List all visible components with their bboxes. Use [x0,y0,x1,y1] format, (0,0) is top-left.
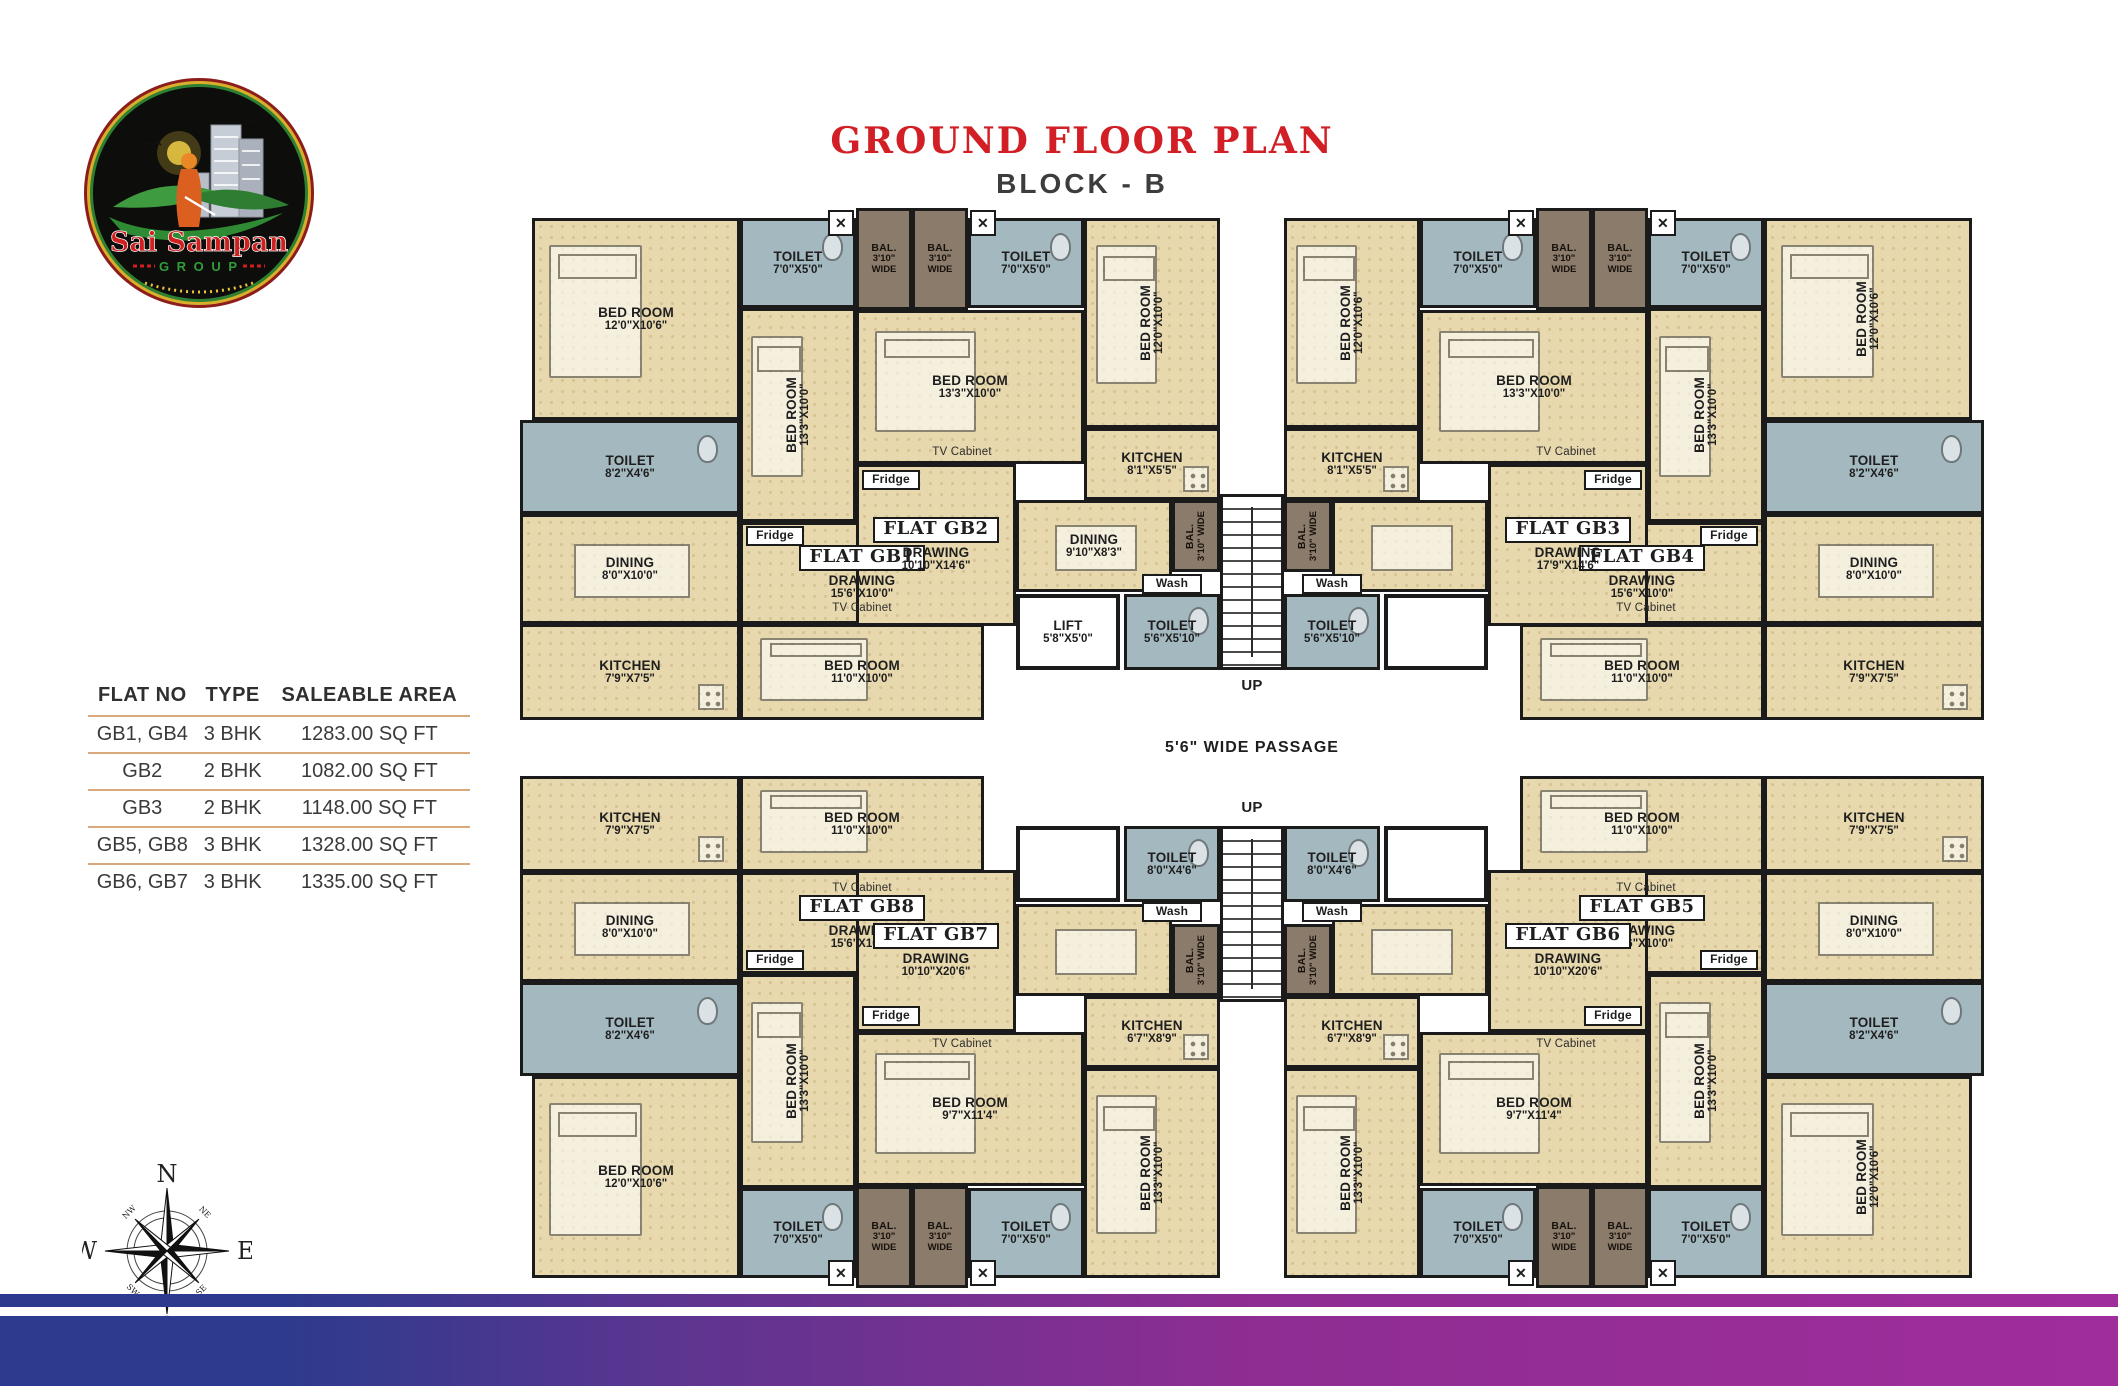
table-cell: GB5, GB8 [88,827,197,864]
room-gb3-bed1: BED ROOM13'3"X10'0" [1420,310,1648,464]
room-passage: 5'6" WIDE PASSAGE [826,720,1678,776]
room-gb2-kitchen: KITCHEN8'1"X5'5" [1084,428,1220,500]
room-label: KITCHEN7'9"X7'5" [599,658,660,686]
room-label: BAL.3'10" WIDE [1185,935,1207,985]
room-label: TOILET7'0"X5'0" [773,249,823,277]
room-gb5-bed1: BED ROOM12'0"X10'6" [1764,1076,1972,1278]
room-label: DINING8'0"X10'0" [602,555,658,583]
room-label: Fridge [872,1009,910,1022]
table-cell: 3 BHK [197,827,269,864]
room-label: Fridge [1710,529,1748,542]
room-label: FLAT GB2DRAWING10'10"X14'6" [873,517,998,572]
corner-cross-icon: ✕ [1508,210,1534,236]
table-cell: 3 BHK [197,716,269,753]
room-label: UP [1241,678,1262,695]
room-fridge-gb4: Fridge [1700,526,1758,546]
sai-sampan-logo: Sai Sampan G R O U P [90,84,308,302]
room-gb1-toilet-2: TOILET8'2"X4'6" [520,420,740,514]
room-label: TOILET7'0"X5'0" [1681,1219,1731,1247]
room-label: KITCHEN7'9"X7'5" [1843,658,1904,686]
wc-icon [1502,1203,1523,1231]
room-gb5-dining: DINING8'0"X10'0" [1764,872,1984,982]
room-bal-bot-right-2: BAL.3'10" WIDE [1536,1186,1592,1288]
table-icon [1371,525,1453,570]
flat-area-table: FLAT NOTYPESALEABLE AREA GB1, GB43 BHK12… [88,678,470,900]
room-bal-bot-left-2: BAL.3'10" WIDE [912,1186,968,1288]
stove-icon [1383,466,1409,492]
room-gb3-wash: Wash [1302,574,1362,594]
table-header: TYPE [197,678,269,716]
room-gb4-kitchen: KITCHEN7'9"X7'5" [1764,624,1984,720]
corner-cross-icon: ✕ [970,1260,996,1286]
logo-art-icon: Sai Sampan G R O U P [93,87,305,299]
room-gb3-bal: BAL.3'10" WIDE [1284,500,1332,572]
room-gb7-bed1: BED ROOM9'7"X11'4" [856,1032,1084,1186]
room-label: ✕ [835,1266,847,1280]
room-label: BED ROOM13'3"X10'0" [784,377,812,453]
room-label: Fridge [756,953,794,966]
room-gb6-wash: Wash [1302,902,1362,922]
room-gb4-dining: DINING8'0"X10'0" [1764,514,1984,624]
room-landing-bot-left [1016,826,1120,902]
table-cell: 3 BHK [197,864,269,900]
room-label: BAL.3'10" WIDE [1185,511,1207,561]
room-label: FLAT GB6DRAWING10'10"X20'6" [1505,923,1630,978]
table-cell: GB1, GB4 [88,716,197,753]
room-label: Fridge [1594,473,1632,486]
room-label: DINING9'10"X8'3" [1066,532,1122,560]
room-gb2-toilet-lobby: TOILET5'6"X5'10" [1124,594,1220,670]
table-cell: 1082.00 SQ FT [269,753,470,790]
wc-icon [1730,1203,1751,1231]
room-label: ✕ [977,216,989,230]
stairs-stairs-bottom [1220,826,1284,1002]
wc-icon [822,233,843,261]
room-label: BED ROOM12'0"X10'0" [1138,285,1166,361]
stove-icon [1942,684,1968,710]
logo-name-text: Sai Sampan [110,227,289,258]
room-label: ✕ [835,216,847,230]
room-gb5-kitchen: KITCHEN7'9"X7'5" [1764,776,1984,872]
flat-name-label: FLAT GB7 [873,923,998,948]
stove-icon [1383,1034,1409,1060]
table-header: SALEABLE AREA [269,678,470,716]
room-gb5-bed2: BED ROOM13'3"X10'0" [1648,974,1764,1188]
table-cell: 1328.00 SQ FT [269,827,470,864]
room-gb8-kitchen: KITCHEN7'9"X7'5" [520,776,740,872]
room-gb2-wash: Wash [1142,574,1202,594]
room-label: TV Cabinet [1616,602,1676,615]
room-bal-bot-left-1: BAL.3'10" WIDE [856,1186,912,1288]
room-label: BED ROOM12'0"X10'6" [1338,285,1366,361]
room-gb1-bed3: BED ROOM11'0"X10'0" [740,624,984,720]
footer-accent-stripe [0,1294,2118,1307]
room-label: TOILET8'2"X4'6" [1849,1015,1899,1043]
room-label: ✕ [1657,216,1669,230]
room-label: DINING8'0"X10'0" [1846,913,1902,941]
room-label: BAL.3'10" WIDE [1539,1221,1589,1254]
room-up-top: UP [1220,676,1284,696]
stove-icon [698,836,724,862]
room-gb8-dining: DINING8'0"X10'0" [520,872,740,982]
room-label: BED ROOM12'0"X10'6" [598,1163,674,1191]
room-gb4-bed2: BED ROOM13'3"X10'0" [1648,308,1764,522]
room-gb3-bed2: BED ROOM12'0"X10'6" [1284,218,1420,428]
room-tv-gb6: TV Cabinet [1524,1036,1608,1052]
room-label: TOILET8'2"X4'6" [605,1015,655,1043]
room-label: BED ROOM13'3"X10'0" [784,1043,812,1119]
wc-icon [822,1203,843,1231]
wc-icon [697,435,718,463]
wc-icon [1941,997,1962,1025]
room-label: TV Cabinet [932,1038,992,1051]
room-gb6-bed2: BED ROOM13'3"X10'0" [1284,1068,1420,1278]
flat-name-label: FLAT GB5 [1579,895,1704,920]
room-label: Wash [1156,577,1188,590]
room-tv-gb5: TV Cabinet [1604,880,1688,896]
table-cell: 1148.00 SQ FT [269,790,470,827]
room-label: Fridge [1710,953,1748,966]
room-gb8-bed1: BED ROOM12'0"X10'6" [532,1076,740,1278]
room-bal-bot-right-1: BAL.3'10" WIDE [1592,1186,1648,1288]
room-gb2-bed1: BED ROOM13'3"X10'0" [856,310,1084,464]
room-bal-top-right-2: BAL.3'10" WIDE [1536,208,1592,310]
room-label: TOILET5'6"X5'10" [1304,618,1360,646]
room-gb7-bed2: BED ROOM13'3"X10'0" [1084,1068,1220,1278]
room-label: TOILET7'0"X5'0" [1681,249,1731,277]
stove-icon [1942,836,1968,862]
room-gb7-wash: Wash [1142,902,1202,922]
compass-west-label: W [82,1237,97,1265]
room-label: BED ROOM12'0"X10'6" [1854,1139,1882,1215]
block-subtitle: BLOCK - B [742,168,1422,200]
room-gb4-bed3: BED ROOM11'0"X10'0" [1520,624,1764,720]
room-label: KITCHEN8'1"X5'5" [1321,450,1382,478]
room-label: ✕ [1657,1266,1669,1280]
room-label: ✕ [977,1266,989,1280]
table-row: GB6, GB73 BHK1335.00 SQ FT [88,864,470,900]
room-label: TV Cabinet [1536,1038,1596,1051]
room-label: BAL.3'10" WIDE [1595,1221,1645,1254]
wc-icon [697,997,718,1025]
table-cell: GB2 [88,753,197,790]
compass-north-label: N [157,1160,178,1188]
room-tv-gb3: TV Cabinet [1524,444,1608,460]
flat-area-table-head: FLAT NOTYPESALEABLE AREA [88,678,470,716]
room-gb5-toilet-2: TOILET8'2"X4'6" [1764,982,1984,1076]
room-label: Fridge [872,473,910,486]
room-label: FLAT GB3DRAWING17'9"X14'6" [1505,517,1630,572]
table-cell: 2 BHK [197,753,269,790]
room-gb1-kitchen: KITCHEN7'9"X7'5" [520,624,740,720]
table-row: GB22 BHK1082.00 SQ FT [88,753,470,790]
table-row: GB32 BHK1148.00 SQ FT [88,790,470,827]
room-label: BED ROOM11'0"X10'0" [824,810,900,838]
room-label: TOILET7'0"X5'0" [1001,249,1051,277]
room-gb3-toilet-lobby: TOILET5'6"X5'10" [1284,594,1380,670]
room-label: Wash [1316,577,1348,590]
compass-ne-label: NE [197,1205,213,1221]
room-label: 5'6" WIDE PASSAGE [1165,739,1339,757]
corner-cross-icon: ✕ [828,210,854,236]
room-gb8-toilet-2: TOILET8'2"X4'6" [520,982,740,1076]
room-label: BED ROOM13'3"X10'0" [1338,1135,1366,1211]
room-gb1-dining: DINING8'0"X10'0" [520,514,740,624]
room-fridge-gb3: Fridge [1584,470,1642,490]
room-fridge-gb8: Fridge [746,950,804,970]
room-label: BED ROOM13'3"X10'0" [1138,1135,1166,1211]
table-cell: 2 BHK [197,790,269,827]
room-fridge-gb2: Fridge [862,470,920,490]
logo-group-text: G R O U P [159,259,239,274]
room-label: TOILET8'2"X4'6" [605,453,655,481]
room-label: BAL.3'10" WIDE [859,243,909,276]
table-row: GB1, GB43 BHK1283.00 SQ FT [88,716,470,753]
wc-icon [1050,1203,1071,1231]
room-label: BED ROOM11'0"X10'0" [1604,810,1680,838]
room-label: BAL.3'10" WIDE [1297,511,1319,561]
room-label: BAL.3'10" WIDE [915,243,965,276]
room-tv-gb8: TV Cabinet [820,880,904,896]
room-label: KITCHEN6'7"X8'9" [1121,1018,1182,1046]
flat-name-label: FLAT GB8 [799,895,924,920]
wc-icon [1941,435,1962,463]
room-gb8-bed3: BED ROOM11'0"X10'0" [740,776,984,872]
title-block: GROUND FLOOR PLAN BLOCK - B [742,120,1422,200]
wc-icon [1050,233,1071,261]
table-cell: 1335.00 SQ FT [269,864,470,900]
room-label: KITCHEN7'9"X7'5" [599,810,660,838]
room-label: TOILET7'0"X5'0" [1453,1219,1503,1247]
room-label: TOILET8'0"X4'6" [1147,850,1197,878]
room-label: TV Cabinet [832,882,892,895]
room-label: TOILET8'2"X4'6" [1849,453,1899,481]
room-label: Fridge [756,529,794,542]
room-bal-top-left-2: BAL.3'10" WIDE [912,208,968,310]
room-gb6-bed1: BED ROOM9'7"X11'4" [1420,1032,1648,1186]
compass-east-label: E [237,1237,252,1265]
room-label: BAL.3'10" WIDE [915,1221,965,1254]
room-fridge-gb6: Fridge [1584,1006,1642,1026]
room-tv-gb1: TV Cabinet [820,600,904,616]
corner-cross-icon: ✕ [970,210,996,236]
table-icon [1371,929,1453,974]
room-label: DINING8'0"X10'0" [1846,555,1902,583]
flat-area-table-body: GB1, GB43 BHK1283.00 SQ FTGB22 BHK1082.0… [88,716,470,900]
room-label: FLAT GB7DRAWING10'10"X20'6" [873,923,998,978]
room-fridge-gb1: Fridge [746,526,804,546]
room-fridge-gb7: Fridge [862,1006,920,1026]
room-label: BAL.3'10" WIDE [1539,243,1589,276]
room-label: UP [1241,800,1262,817]
table-cell: GB6, GB7 [88,864,197,900]
flat-name-label: FLAT GB2 [873,517,998,542]
room-gb3-kitchen: KITCHEN8'1"X5'5" [1284,428,1420,500]
room-lift: LIFT5'8"X5'0" [1016,594,1120,670]
room-up-bottom: UP [1220,798,1284,818]
room-label: ✕ [1515,216,1527,230]
room-label: BED ROOM13'3"X10'0" [1692,1043,1720,1119]
room-gb6-kitchen: KITCHEN6'7"X8'9" [1284,996,1420,1068]
corner-cross-icon: ✕ [1650,1260,1676,1286]
table-cell: 1283.00 SQ FT [269,716,470,753]
room-gb7-kitchen: KITCHEN6'7"X8'9" [1084,996,1220,1068]
room-label: BAL.3'10" WIDE [859,1221,909,1254]
corner-cross-icon: ✕ [1650,210,1676,236]
room-label: Wash [1316,905,1348,918]
room-label: TV Cabinet [1616,882,1676,895]
wc-icon [1730,233,1751,261]
table-row: GB5, GB83 BHK1328.00 SQ FT [88,827,470,864]
room-gb5-bed3: BED ROOM11'0"X10'0" [1520,776,1764,872]
floor-plan: BED ROOM12'0"X10'6"TOILET7'0"X5'0"BAL.3'… [520,208,1984,1288]
room-label: Fridge [1594,1009,1632,1022]
room-tv-gb4: TV Cabinet [1604,600,1688,616]
room-label: TOILET8'0"X4'6" [1307,850,1357,878]
room-label: BED ROOM13'3"X10'0" [1692,377,1720,453]
room-label: BED ROOM12'0"X10'6" [598,305,674,333]
stairs-stairs-top [1220,494,1284,670]
flat-name-label: FLAT GB3 [1505,517,1630,542]
room-landing-bot-right [1384,826,1488,902]
room-gb7-bal: BAL.3'10" WIDE [1172,924,1220,996]
room-label: BED ROOM13'3"X10'0" [932,373,1008,401]
room-label: TOILET7'0"X5'0" [773,1219,823,1247]
room-label: KITCHEN7'9"X7'5" [1843,810,1904,838]
room-fridge-gb5: Fridge [1700,950,1758,970]
room-label: BED ROOM9'7"X11'4" [1496,1095,1572,1123]
room-label: TV Cabinet [1536,446,1596,459]
stove-icon [1183,1034,1209,1060]
stove-icon [698,684,724,710]
compass-nw-label: NW [121,1203,139,1221]
stove-icon [1183,466,1209,492]
room-label: BED ROOM11'0"X10'0" [824,658,900,686]
table-icon [1055,929,1137,974]
room-gb4-bed1: BED ROOM12'0"X10'6" [1764,218,1972,420]
room-label: BAL.3'10" WIDE [1297,935,1319,985]
room-label: KITCHEN6'7"X8'9" [1321,1018,1382,1046]
room-gb6-toilet-2: TOILET8'0"X4'6" [1284,826,1380,902]
page-title: GROUND FLOOR PLAN [742,120,1422,162]
room-gb1-bed2: BED ROOM13'3"X10'0" [740,308,856,522]
room-label: BED ROOM12'0"X10'6" [1854,281,1882,357]
room-bal-top-right-1: BAL.3'10" WIDE [1592,208,1648,310]
room-label: TV Cabinet [832,602,892,615]
footer-band [0,1316,2118,1386]
page: Sai Sampan G R O U P GROUND FLOOR PLAN B… [0,0,2118,1386]
corner-cross-icon: ✕ [828,1260,854,1286]
room-label: KITCHEN8'1"X5'5" [1121,450,1182,478]
room-gb4-toilet-2: TOILET8'2"X4'6" [1764,420,1984,514]
room-label: BED ROOM9'7"X11'4" [932,1095,1008,1123]
table-cell: GB3 [88,790,197,827]
flat-name-label: FLAT GB6 [1505,923,1630,948]
room-label: TOILET5'6"X5'10" [1144,618,1200,646]
room-label: DINING8'0"X10'0" [602,913,658,941]
room-tv-gb7: TV Cabinet [920,1036,1004,1052]
wc-icon [1502,233,1523,261]
room-label: TV Cabinet [932,446,992,459]
room-label: LIFT5'8"X5'0" [1043,618,1093,646]
room-label: Wash [1156,905,1188,918]
room-label: BAL.3'10" WIDE [1595,243,1645,276]
room-label: BED ROOM11'0"X10'0" [1604,658,1680,686]
room-landing-top [1384,594,1488,670]
room-label: TOILET7'0"X5'0" [1453,249,1503,277]
room-bal-top-left-1: BAL.3'10" WIDE [856,208,912,310]
table-header: FLAT NO [88,678,197,716]
room-label: TOILET7'0"X5'0" [1001,1219,1051,1247]
room-gb2-bal: BAL.3'10" WIDE [1172,500,1220,572]
room-tv-gb2: TV Cabinet [920,444,1004,460]
room-gb2-bed2: BED ROOM12'0"X10'0" [1084,218,1220,428]
room-gb7-toilet-2: TOILET8'0"X4'6" [1124,826,1220,902]
room-label: ✕ [1515,1266,1527,1280]
room-label: BED ROOM13'3"X10'0" [1496,373,1572,401]
room-gb6-bal: BAL.3'10" WIDE [1284,924,1332,996]
corner-cross-icon: ✕ [1508,1260,1534,1286]
room-gb1-bed1: BED ROOM12'0"X10'6" [532,218,740,420]
room-gb8-bed2: BED ROOM13'3"X10'0" [740,974,856,1188]
